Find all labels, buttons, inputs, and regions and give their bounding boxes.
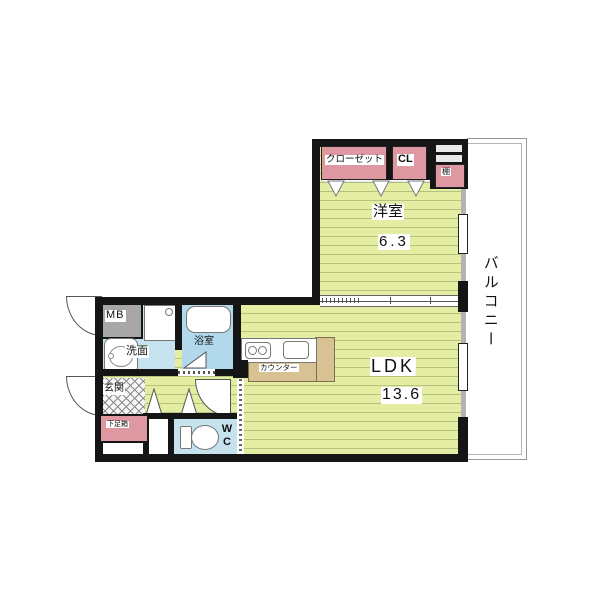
wc-label: WC — [219, 423, 235, 449]
closet-hanger-icon — [322, 179, 432, 197]
pipe-space — [149, 419, 168, 455]
washing-machine-icon — [144, 305, 176, 341]
wall-kitchen-stub — [233, 360, 248, 378]
washroom-sliding-door-icon — [178, 369, 215, 376]
entrance-step-icon — [144, 388, 202, 416]
ldk-size: 13.6 — [381, 387, 422, 404]
wall-bath-divider — [175, 303, 182, 350]
bathroom-label: 浴室 — [193, 337, 215, 348]
closet-label: クローゼット — [325, 155, 384, 165]
counter-side — [315, 337, 335, 382]
shoe-box-label: 下足箱 — [106, 421, 129, 428]
entrance-label: 玄関 — [103, 384, 125, 395]
washroom-label: 洗面 — [125, 346, 149, 358]
wall-right-pier — [458, 281, 468, 312]
wall-right-pier — [458, 417, 468, 462]
window-ldk-icon — [458, 343, 468, 391]
sliding-door-hatch — [322, 298, 362, 303]
toilet-icon — [191, 425, 219, 450]
sliding-door-icon — [320, 295, 461, 307]
sliding-door-tick — [390, 297, 391, 304]
balcony-label: バルコニー — [481, 255, 499, 350]
shoe-box-area — [99, 414, 149, 443]
ldk-label: LDK — [370, 357, 416, 376]
wall-wc-divider — [168, 413, 174, 462]
wall-water-bottom — [95, 369, 241, 376]
wall-wc-top — [143, 413, 244, 419]
wall-bottom — [95, 454, 468, 462]
meter-box-label: MB — [105, 310, 126, 322]
western-room-size: 6.3 — [378, 234, 410, 250]
bathroom-door-icon — [183, 351, 207, 369]
wall-lower-top — [95, 297, 320, 305]
kitchen-sink-icon — [283, 341, 309, 359]
window-western-room-icon — [458, 214, 468, 254]
western-room-label: 洋室 — [372, 204, 404, 220]
shelf-board-icon — [436, 145, 462, 152]
shelf-label: 棚 — [441, 168, 451, 176]
bathtub-icon — [186, 306, 231, 333]
wall-upper-left — [312, 139, 320, 305]
sliding-door-tick — [430, 297, 431, 304]
shelf-board-icon — [436, 155, 462, 162]
floorplan-canvas: バルコニー クローゼット CL 棚 洋室 6.3 LDK 13.6 洗面 — [0, 0, 600, 600]
stove-icon — [245, 342, 271, 359]
folding-door-icon — [237, 379, 244, 454]
cl-label: CL — [397, 154, 414, 166]
counter-label: カウンター — [259, 364, 299, 372]
